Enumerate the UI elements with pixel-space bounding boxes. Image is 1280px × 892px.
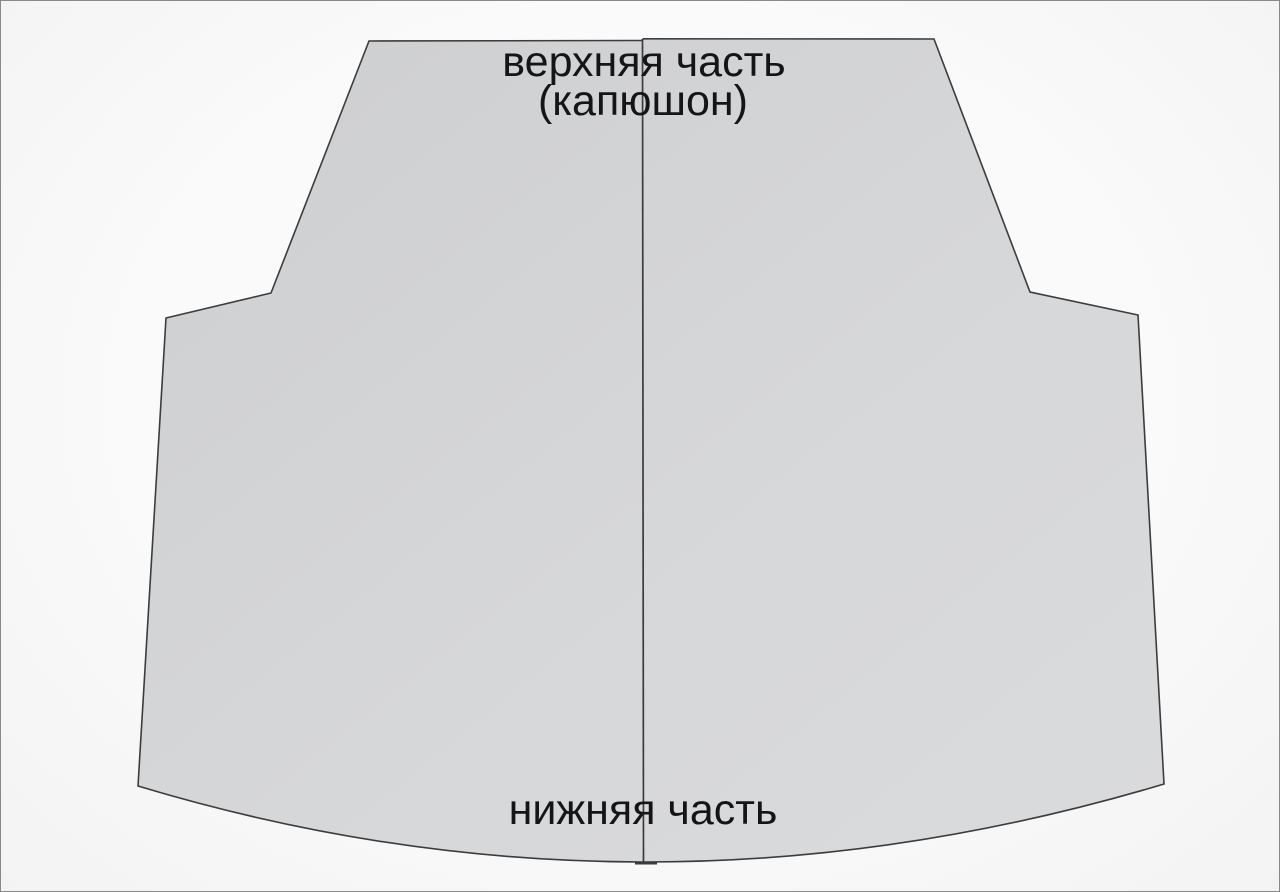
sewing-pattern-diagram: верхняя часть (капюшон) нижняя часть — [1, 1, 1280, 892]
center-seam-line — [643, 39, 644, 862]
top-label-line2: (капюшон) — [538, 77, 748, 125]
bottom-label: нижняя часть — [509, 786, 778, 834]
diagram-canvas: верхняя часть (капюшон) нижняя часть — [0, 0, 1280, 892]
hood-pattern-piece — [138, 39, 1164, 862]
